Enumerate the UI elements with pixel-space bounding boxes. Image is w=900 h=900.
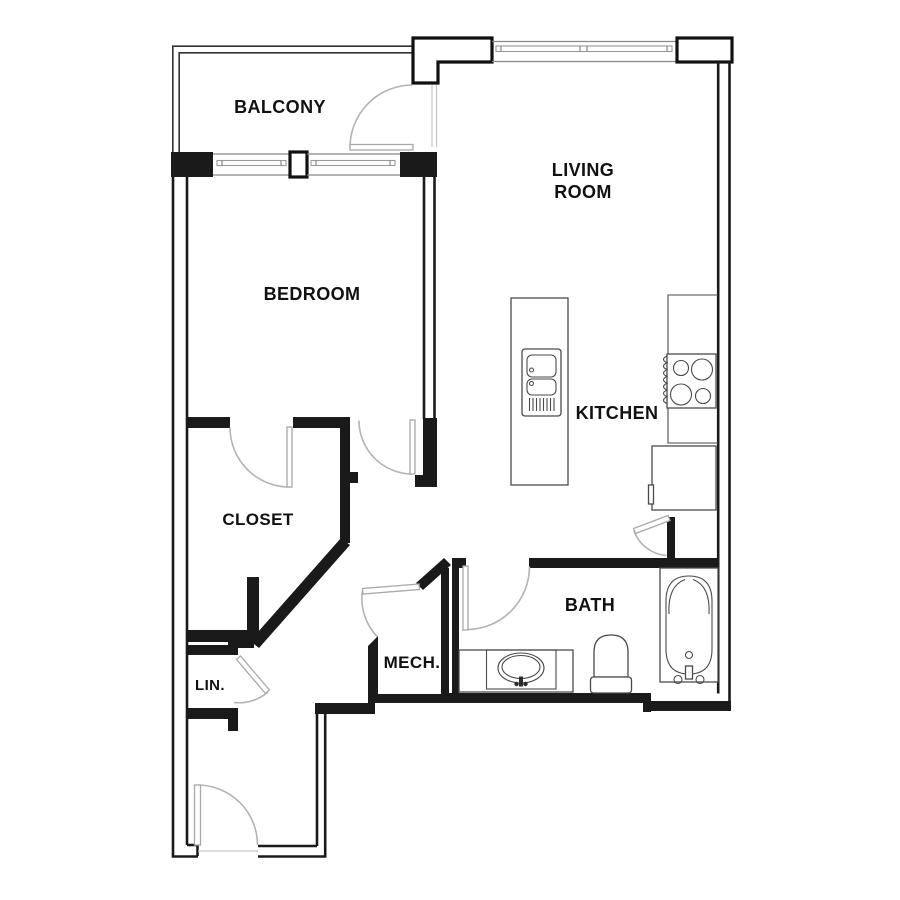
- room-labels: BALCONY LIVING ROOM BEDROOM CLOSET KITCH…: [195, 97, 658, 694]
- refrigerator: [649, 446, 717, 510]
- label-bath: BATH: [565, 595, 615, 615]
- label-mech: MECH.: [384, 653, 441, 672]
- label-living-room-line2: ROOM: [554, 182, 612, 202]
- interior-walls: [187, 177, 731, 731]
- label-living-room-line1: LIVING: [552, 160, 614, 180]
- bathtub: [660, 568, 718, 684]
- balcony-door: [350, 85, 413, 150]
- exterior-walls: [172, 62, 730, 857]
- living-room-window: [413, 38, 732, 83]
- cooktop: [664, 354, 717, 408]
- label-balcony: BALCONY: [234, 97, 326, 117]
- vanity-sink: [459, 650, 573, 692]
- floor-plan: BALCONY LIVING ROOM BEDROOM CLOSET KITCH…: [0, 0, 900, 900]
- label-kitchen: KITCHEN: [576, 403, 659, 423]
- balcony-window-left: [171, 152, 290, 177]
- entry-door: [195, 785, 258, 845]
- label-bedroom: BEDROOM: [264, 284, 361, 304]
- island-sink: [522, 349, 561, 416]
- label-closet: CLOSET: [222, 510, 294, 529]
- label-linen: LIN.: [195, 677, 225, 694]
- floor-plan-page: BALCONY LIVING ROOM BEDROOM CLOSET KITCH…: [0, 0, 900, 900]
- bath-door: [463, 566, 530, 630]
- balcony-window-right: [307, 152, 437, 177]
- closet-door: [230, 427, 292, 487]
- linen-door: [234, 656, 270, 703]
- balcony-window-post: [290, 152, 307, 177]
- toilet: [591, 635, 632, 693]
- kitchen-hall-door: [634, 516, 671, 556]
- bedroom-door: [359, 420, 415, 474]
- mech-door: [362, 584, 420, 637]
